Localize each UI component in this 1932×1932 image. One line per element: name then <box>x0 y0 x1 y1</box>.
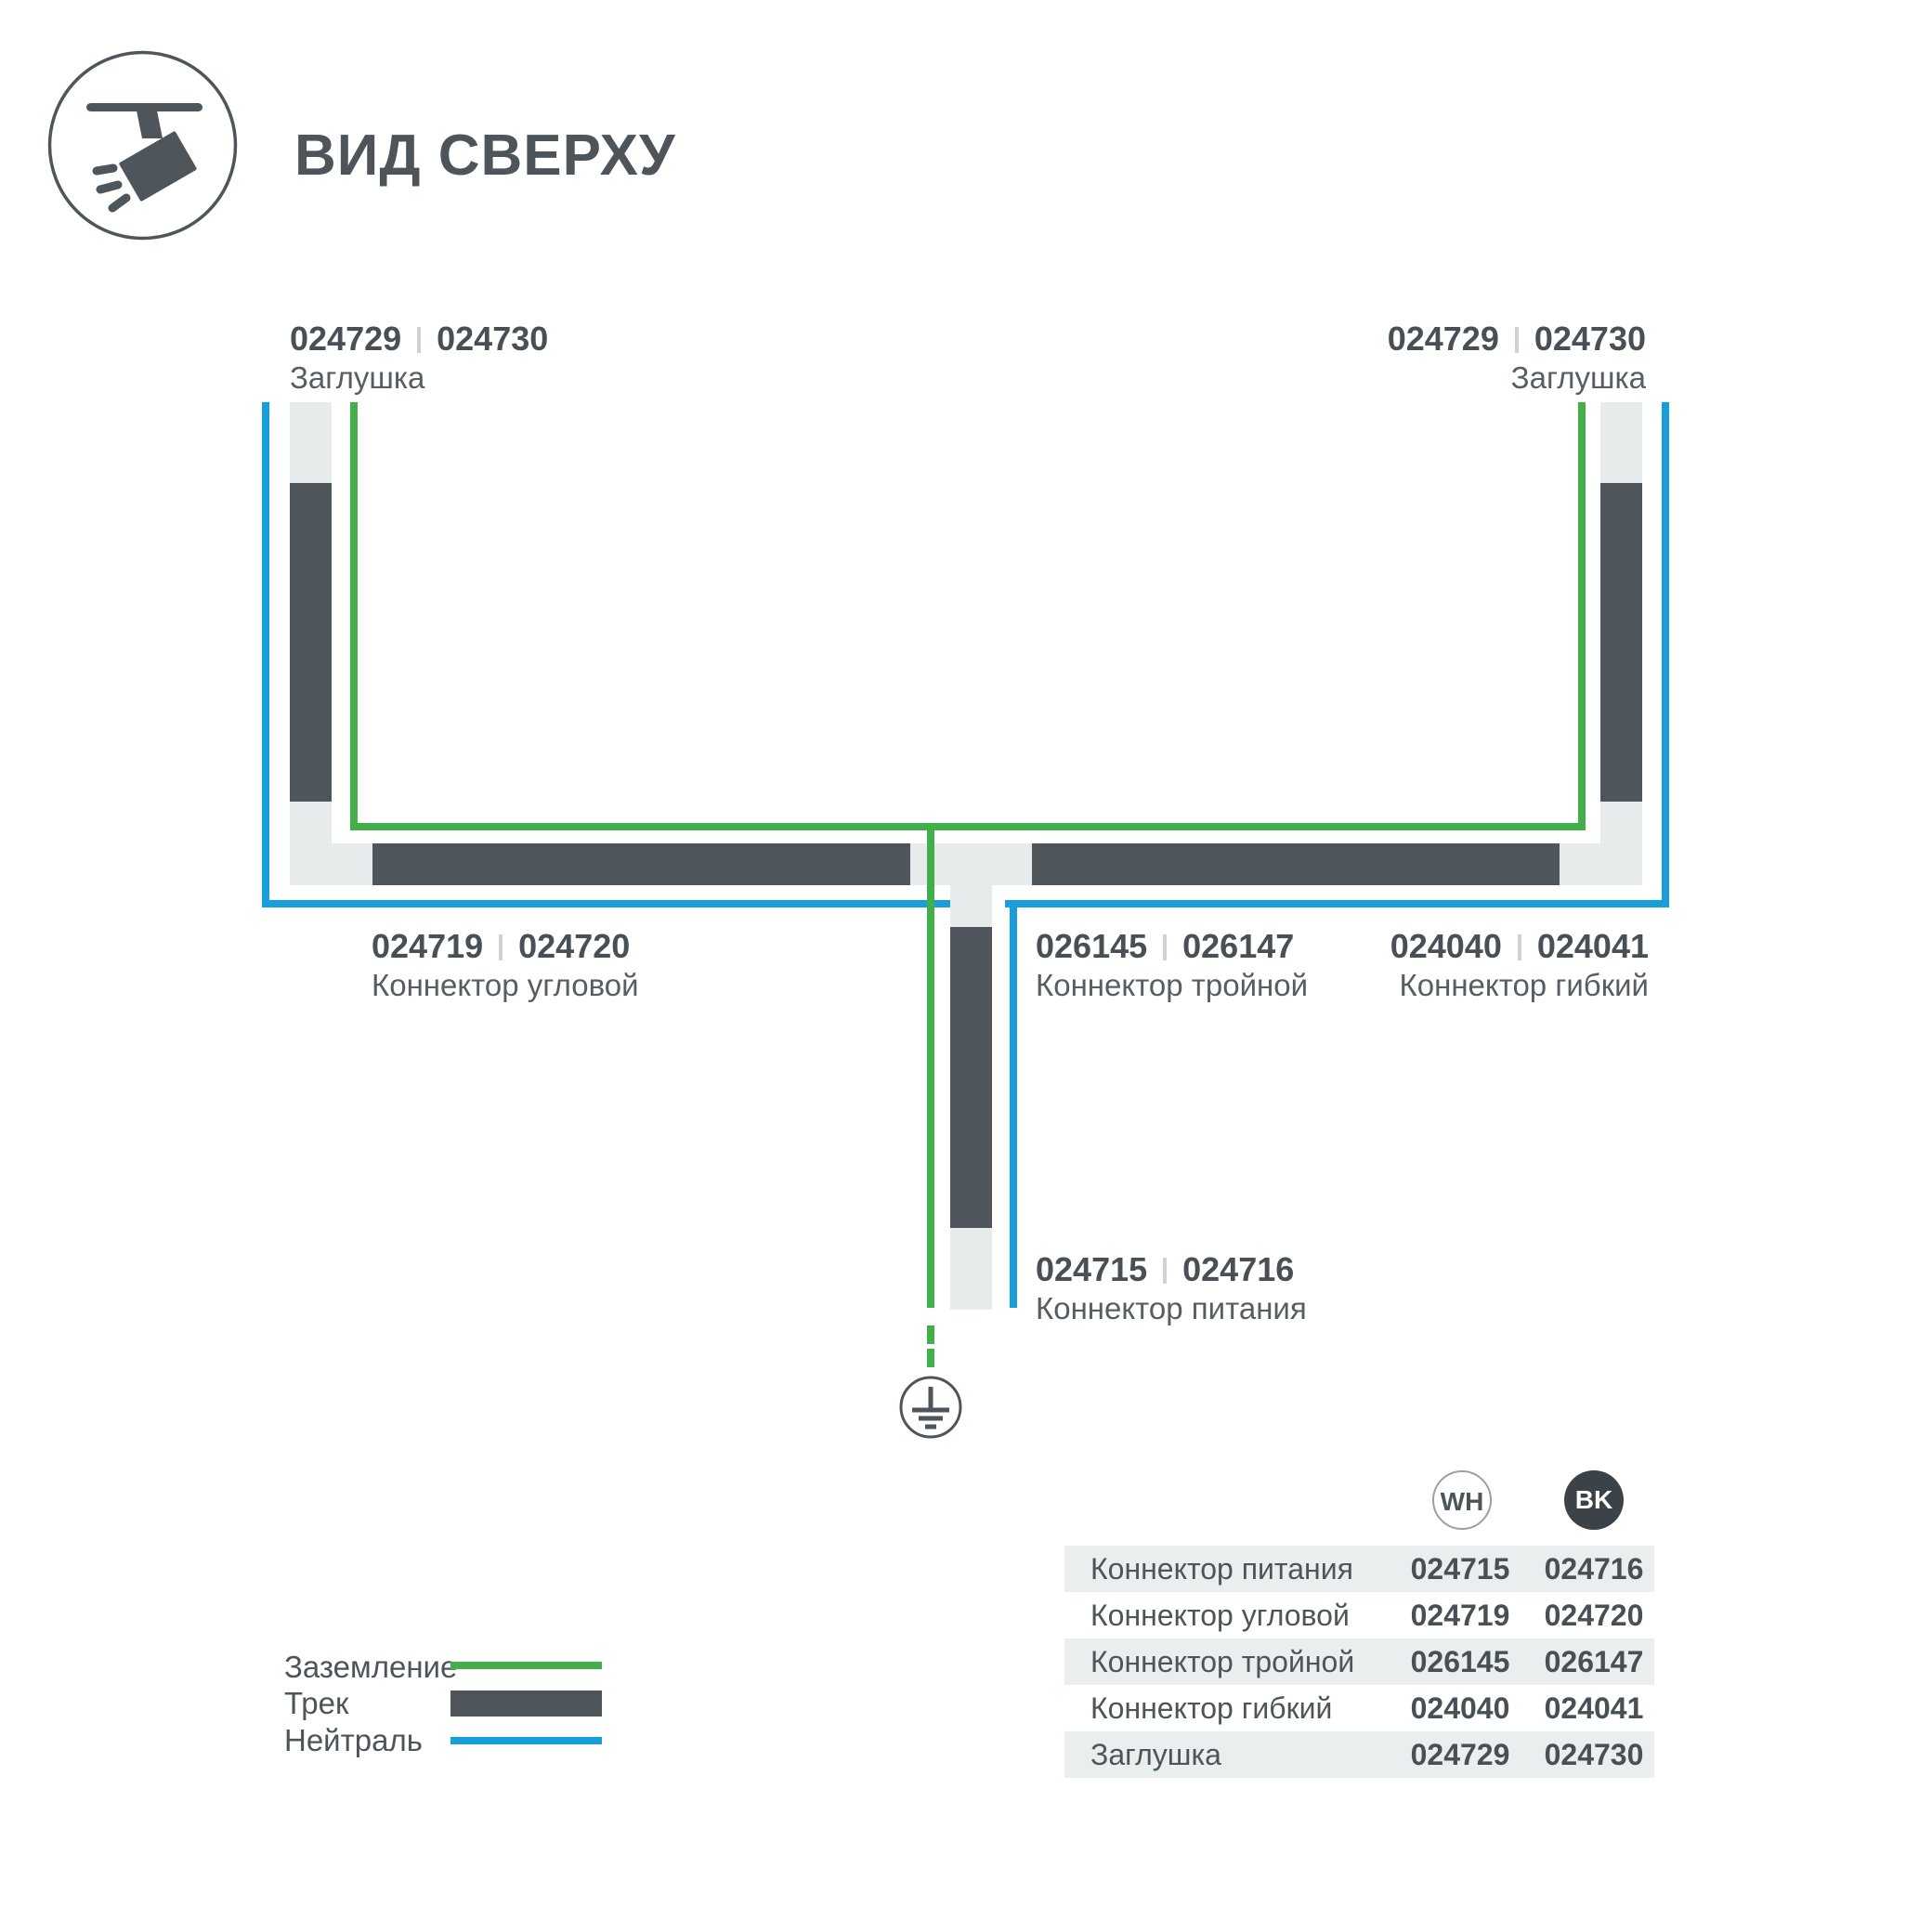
flex-connector-horizontal <box>1560 843 1600 885</box>
ground-line-horizontal <box>350 823 1586 830</box>
corner-connector-horizontal <box>332 843 372 885</box>
neutral-line-right-vertical <box>1662 402 1669 907</box>
neutral-line-bottom-left <box>262 900 950 907</box>
legend-ground-line-swatch <box>450 1662 602 1669</box>
code-separator <box>499 934 503 960</box>
page-title: ВИД СВЕРХУ <box>294 123 676 189</box>
row-code-wh: 024715 <box>1390 1546 1530 1592</box>
part-name: Коннектор угловой <box>372 969 639 1002</box>
track-horizontal-left <box>372 843 910 885</box>
code-separator <box>1163 1258 1167 1284</box>
code-separator <box>1163 934 1167 960</box>
row-label: Коннектор тройной <box>1090 1638 1354 1685</box>
track-horizontal-right <box>1032 843 1560 885</box>
row-label: Коннектор угловой <box>1090 1592 1350 1638</box>
row-label: Коннектор гибкий <box>1090 1685 1332 1731</box>
track-left-vertical <box>290 483 332 802</box>
row-code-bk: 024716 <box>1524 1546 1664 1592</box>
callout-triple-connector: 026145026147 Коннектор тройной <box>1036 929 1308 1002</box>
row-code-bk: 024041 <box>1524 1685 1664 1731</box>
part-name: Заглушка <box>290 361 548 395</box>
row-code-wh: 024729 <box>1390 1731 1530 1778</box>
row-code-bk: 024730 <box>1524 1731 1664 1778</box>
legend-label-ground: Заземление <box>284 1651 457 1684</box>
ground-line-feed-drop <box>927 823 934 1308</box>
corner-connector-vertical <box>290 802 332 885</box>
part-codes: 024719024720 <box>372 929 639 964</box>
flex-connector-vertical <box>1600 802 1642 885</box>
legend-neutral-line-swatch <box>450 1737 602 1744</box>
ground-line-dash-2 <box>927 1349 934 1367</box>
code-separator <box>417 327 421 353</box>
triple-connector-stem <box>950 885 992 927</box>
row-code-bk: 024720 <box>1524 1592 1664 1638</box>
row-code-wh: 026145 <box>1390 1638 1530 1685</box>
part-codes: 026145026147 <box>1036 929 1308 964</box>
end-cap-top-right <box>1600 402 1642 483</box>
part-codes: 024729024730 <box>1388 321 1646 357</box>
callout-flex-connector: 024040024041 Коннектор гибкий <box>1390 929 1649 1002</box>
part-name: Коннектор тройной <box>1036 969 1308 1002</box>
ground-line-right-vertical <box>1578 402 1586 830</box>
power-connector-cap <box>950 1228 992 1310</box>
row-label: Коннектор питания <box>1090 1546 1353 1592</box>
part-name: Коннектор питания <box>1036 1292 1307 1325</box>
column-header-bk: BK <box>1564 1470 1624 1530</box>
legend-track-bar-swatch <box>450 1690 602 1717</box>
page: ВИД СВЕРХУ 024729024730 Заглушка <box>0 0 1932 1932</box>
track-spotlight-icon <box>46 49 239 241</box>
row-code-wh: 024719 <box>1390 1592 1530 1638</box>
track-right-vertical <box>1600 483 1642 802</box>
callout-cap-top-right: 024729024730 Заглушка <box>1388 321 1646 395</box>
neutral-line-bottom-right <box>1005 900 1669 907</box>
part-name: Заглушка <box>1388 361 1646 395</box>
legend-label-track: Трек <box>284 1687 348 1720</box>
table-row: Заглушка 024729 024730 <box>1064 1731 1654 1778</box>
track-center-stem <box>950 927 992 1228</box>
row-label: Заглушка <box>1090 1731 1221 1778</box>
row-code-bk: 026147 <box>1524 1638 1664 1685</box>
code-separator <box>1515 327 1519 353</box>
ground-line-left-vertical <box>350 402 358 830</box>
end-cap-top-left <box>290 402 332 483</box>
neutral-line-feed-drop <box>1010 900 1017 1308</box>
legend-label-neutral: Нейтраль <box>284 1724 423 1757</box>
table-row: Коннектор гибкий 024040 024041 <box>1064 1685 1654 1731</box>
table-row: Коннектор угловой 024719 024720 <box>1064 1592 1654 1638</box>
column-header-wh: WH <box>1432 1470 1492 1530</box>
earth-ground-icon <box>898 1375 963 1440</box>
part-name: Коннектор гибкий <box>1390 969 1649 1002</box>
table-row: Коннектор тройной 026145 026147 <box>1064 1638 1654 1685</box>
part-codes: 024040024041 <box>1390 929 1649 964</box>
part-codes: 024729024730 <box>290 321 548 357</box>
callout-corner-connector: 024719024720 Коннектор угловой <box>372 929 639 1002</box>
ground-line-dash-1 <box>927 1325 934 1344</box>
callout-cap-top-left: 024729024730 Заглушка <box>290 321 548 395</box>
neutral-line-left-vertical <box>262 402 269 907</box>
callout-power-connector: 024715024716 Коннектор питания <box>1036 1252 1307 1325</box>
code-separator <box>1518 934 1521 960</box>
part-codes: 024715024716 <box>1036 1252 1307 1287</box>
row-code-wh: 024040 <box>1390 1685 1530 1731</box>
table-row: Коннектор питания 024715 024716 <box>1064 1546 1654 1592</box>
